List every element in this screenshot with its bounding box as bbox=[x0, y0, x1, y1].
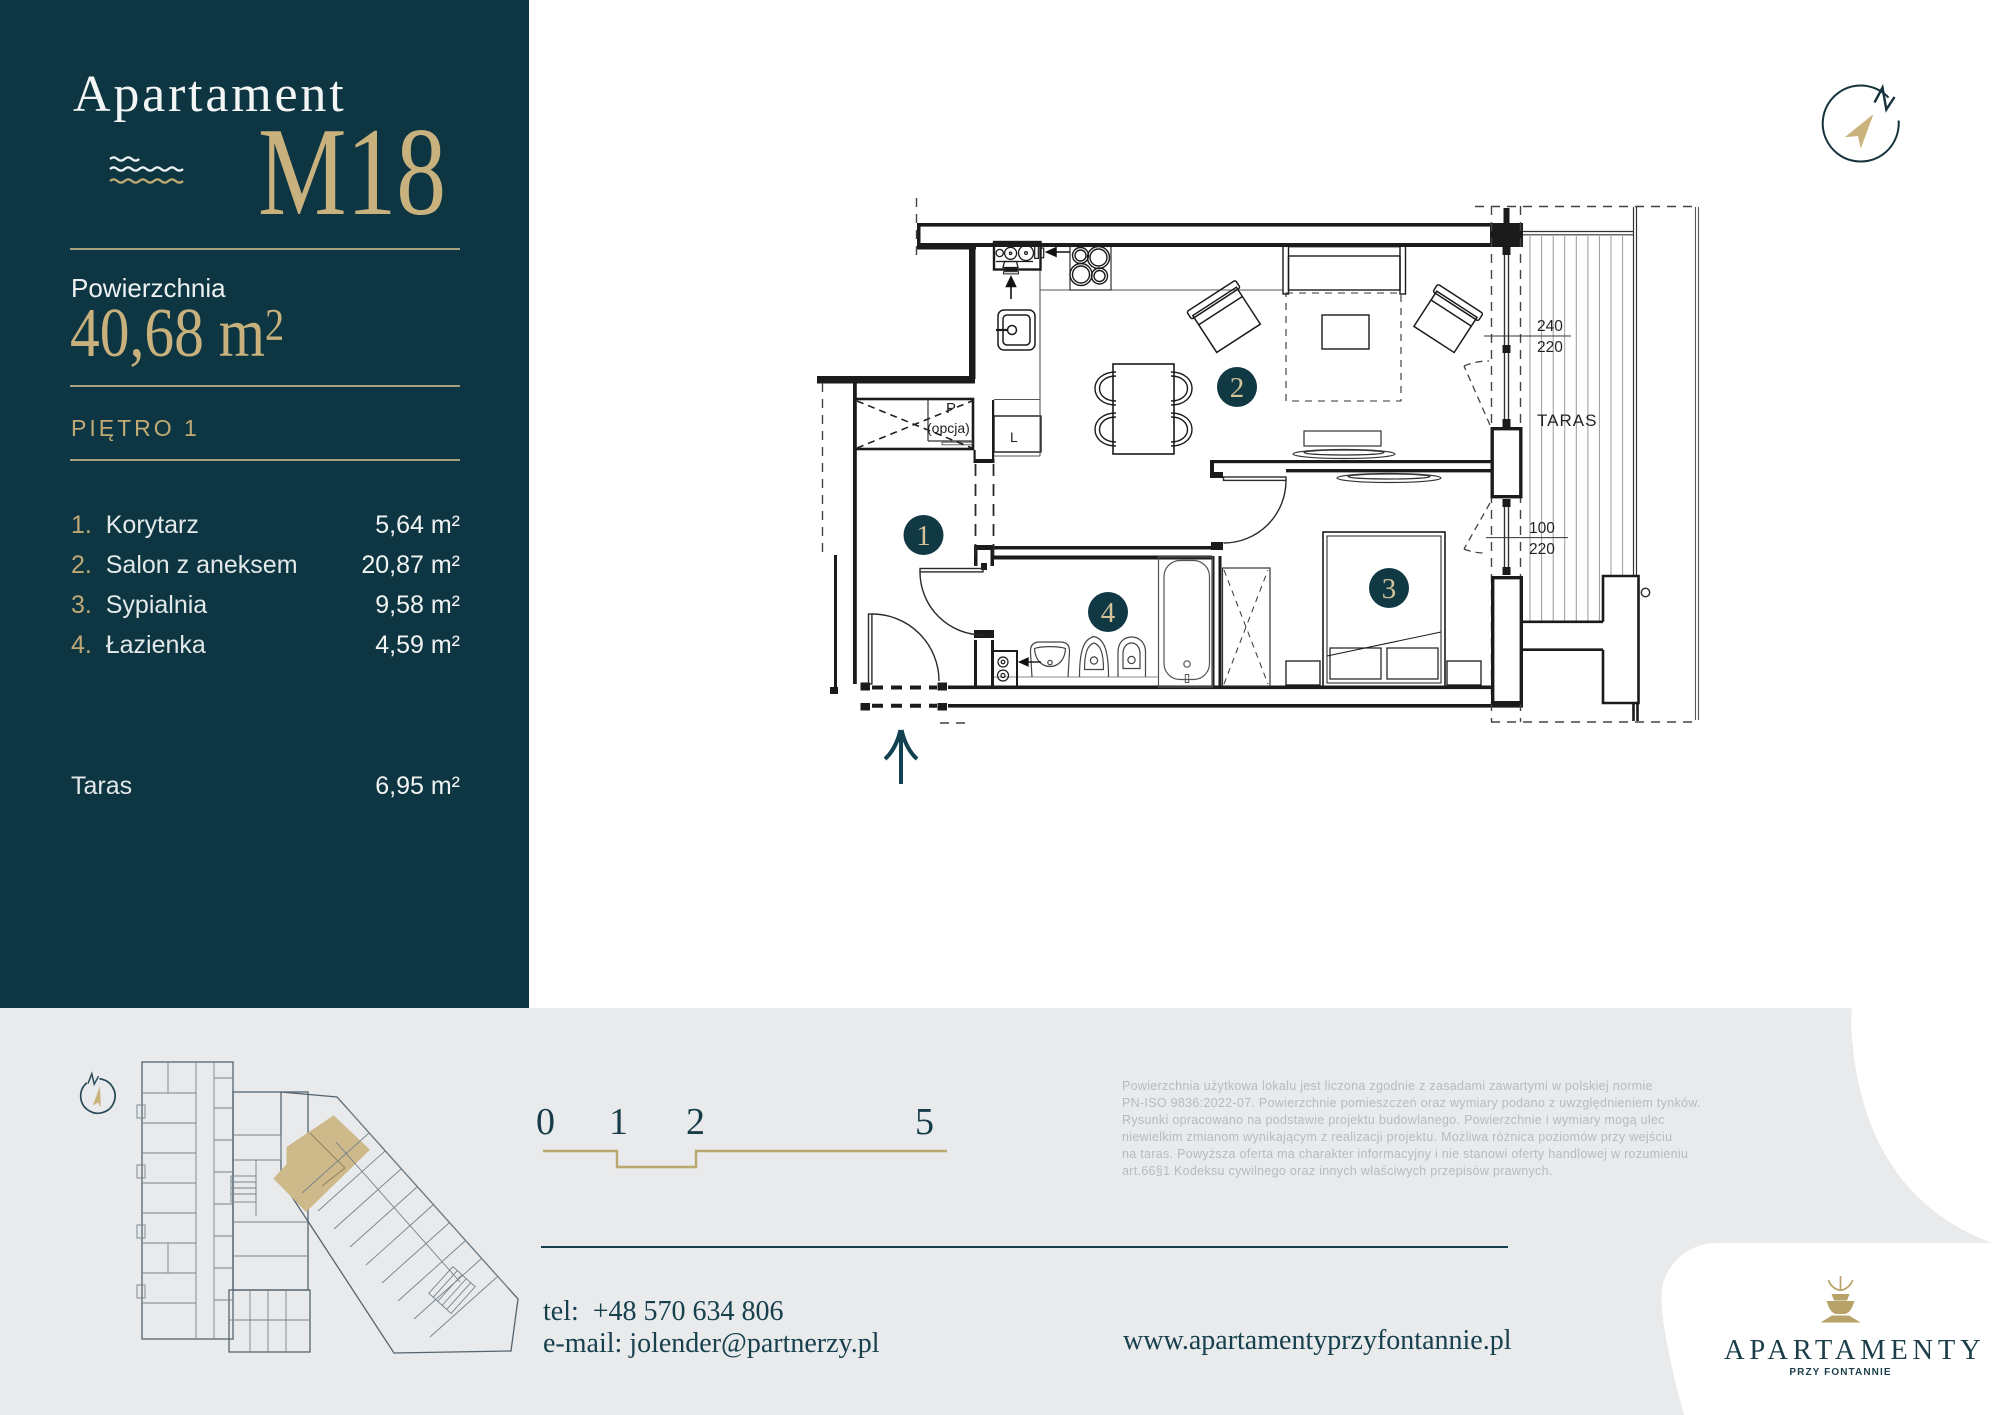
svg-text:220: 220 bbox=[1537, 339, 1563, 356]
svg-text:1: 1 bbox=[916, 520, 931, 552]
svg-text:3: 3 bbox=[1382, 573, 1397, 605]
svg-text:100: 100 bbox=[1529, 520, 1555, 537]
svg-text:240: 240 bbox=[1537, 318, 1563, 335]
svg-text:(opcja): (opcja) bbox=[927, 420, 970, 436]
svg-text:4: 4 bbox=[1101, 597, 1116, 629]
svg-text:L: L bbox=[1010, 429, 1018, 445]
svg-text:P: P bbox=[946, 400, 956, 417]
svg-text:220: 220 bbox=[1529, 541, 1555, 558]
svg-text:2: 2 bbox=[1230, 372, 1245, 404]
svg-text:TARAS: TARAS bbox=[1537, 411, 1597, 430]
